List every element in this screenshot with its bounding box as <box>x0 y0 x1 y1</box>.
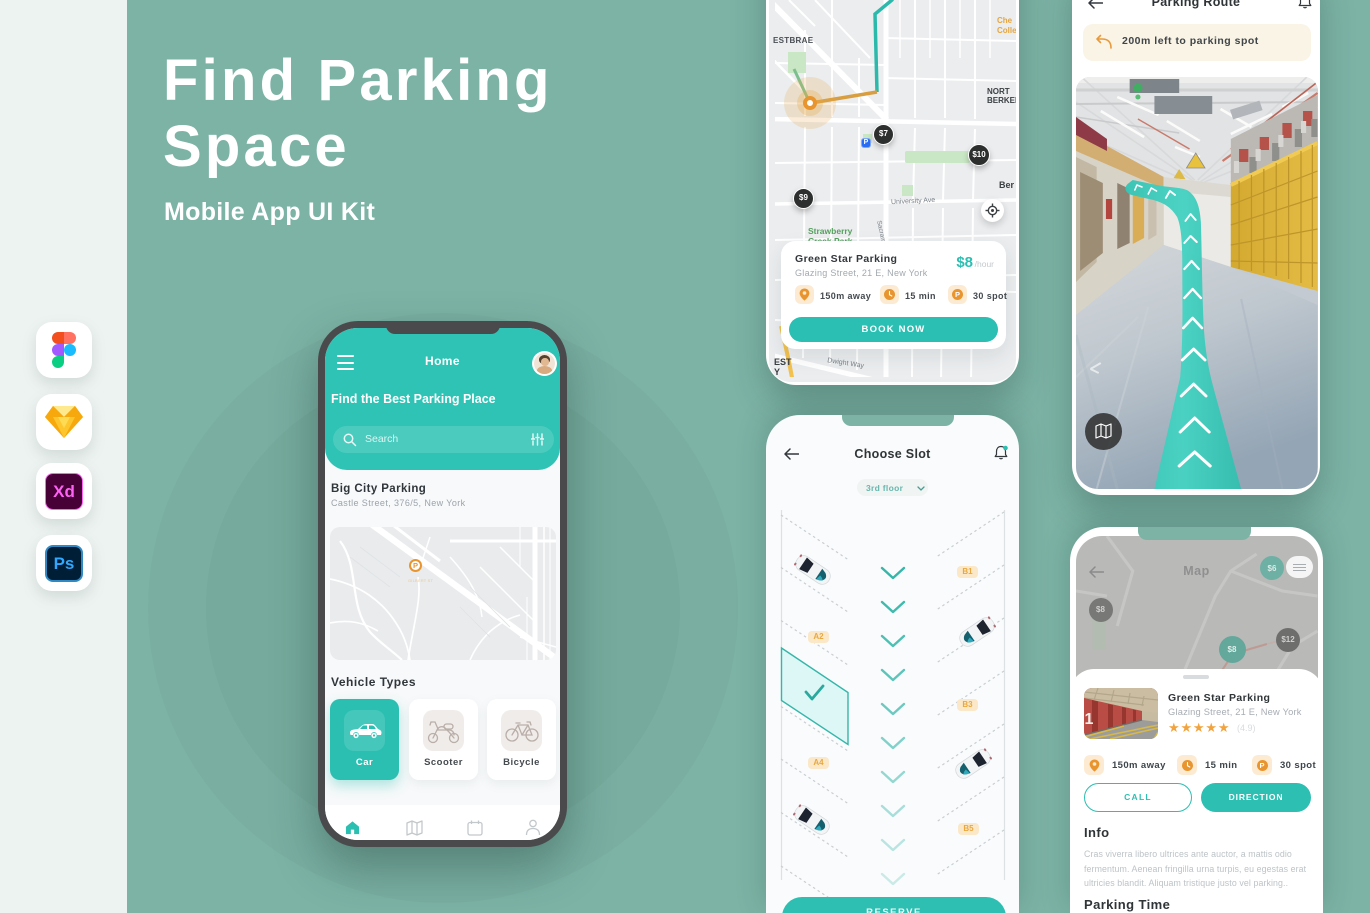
svg-text:1: 1 <box>1085 711 1094 728</box>
